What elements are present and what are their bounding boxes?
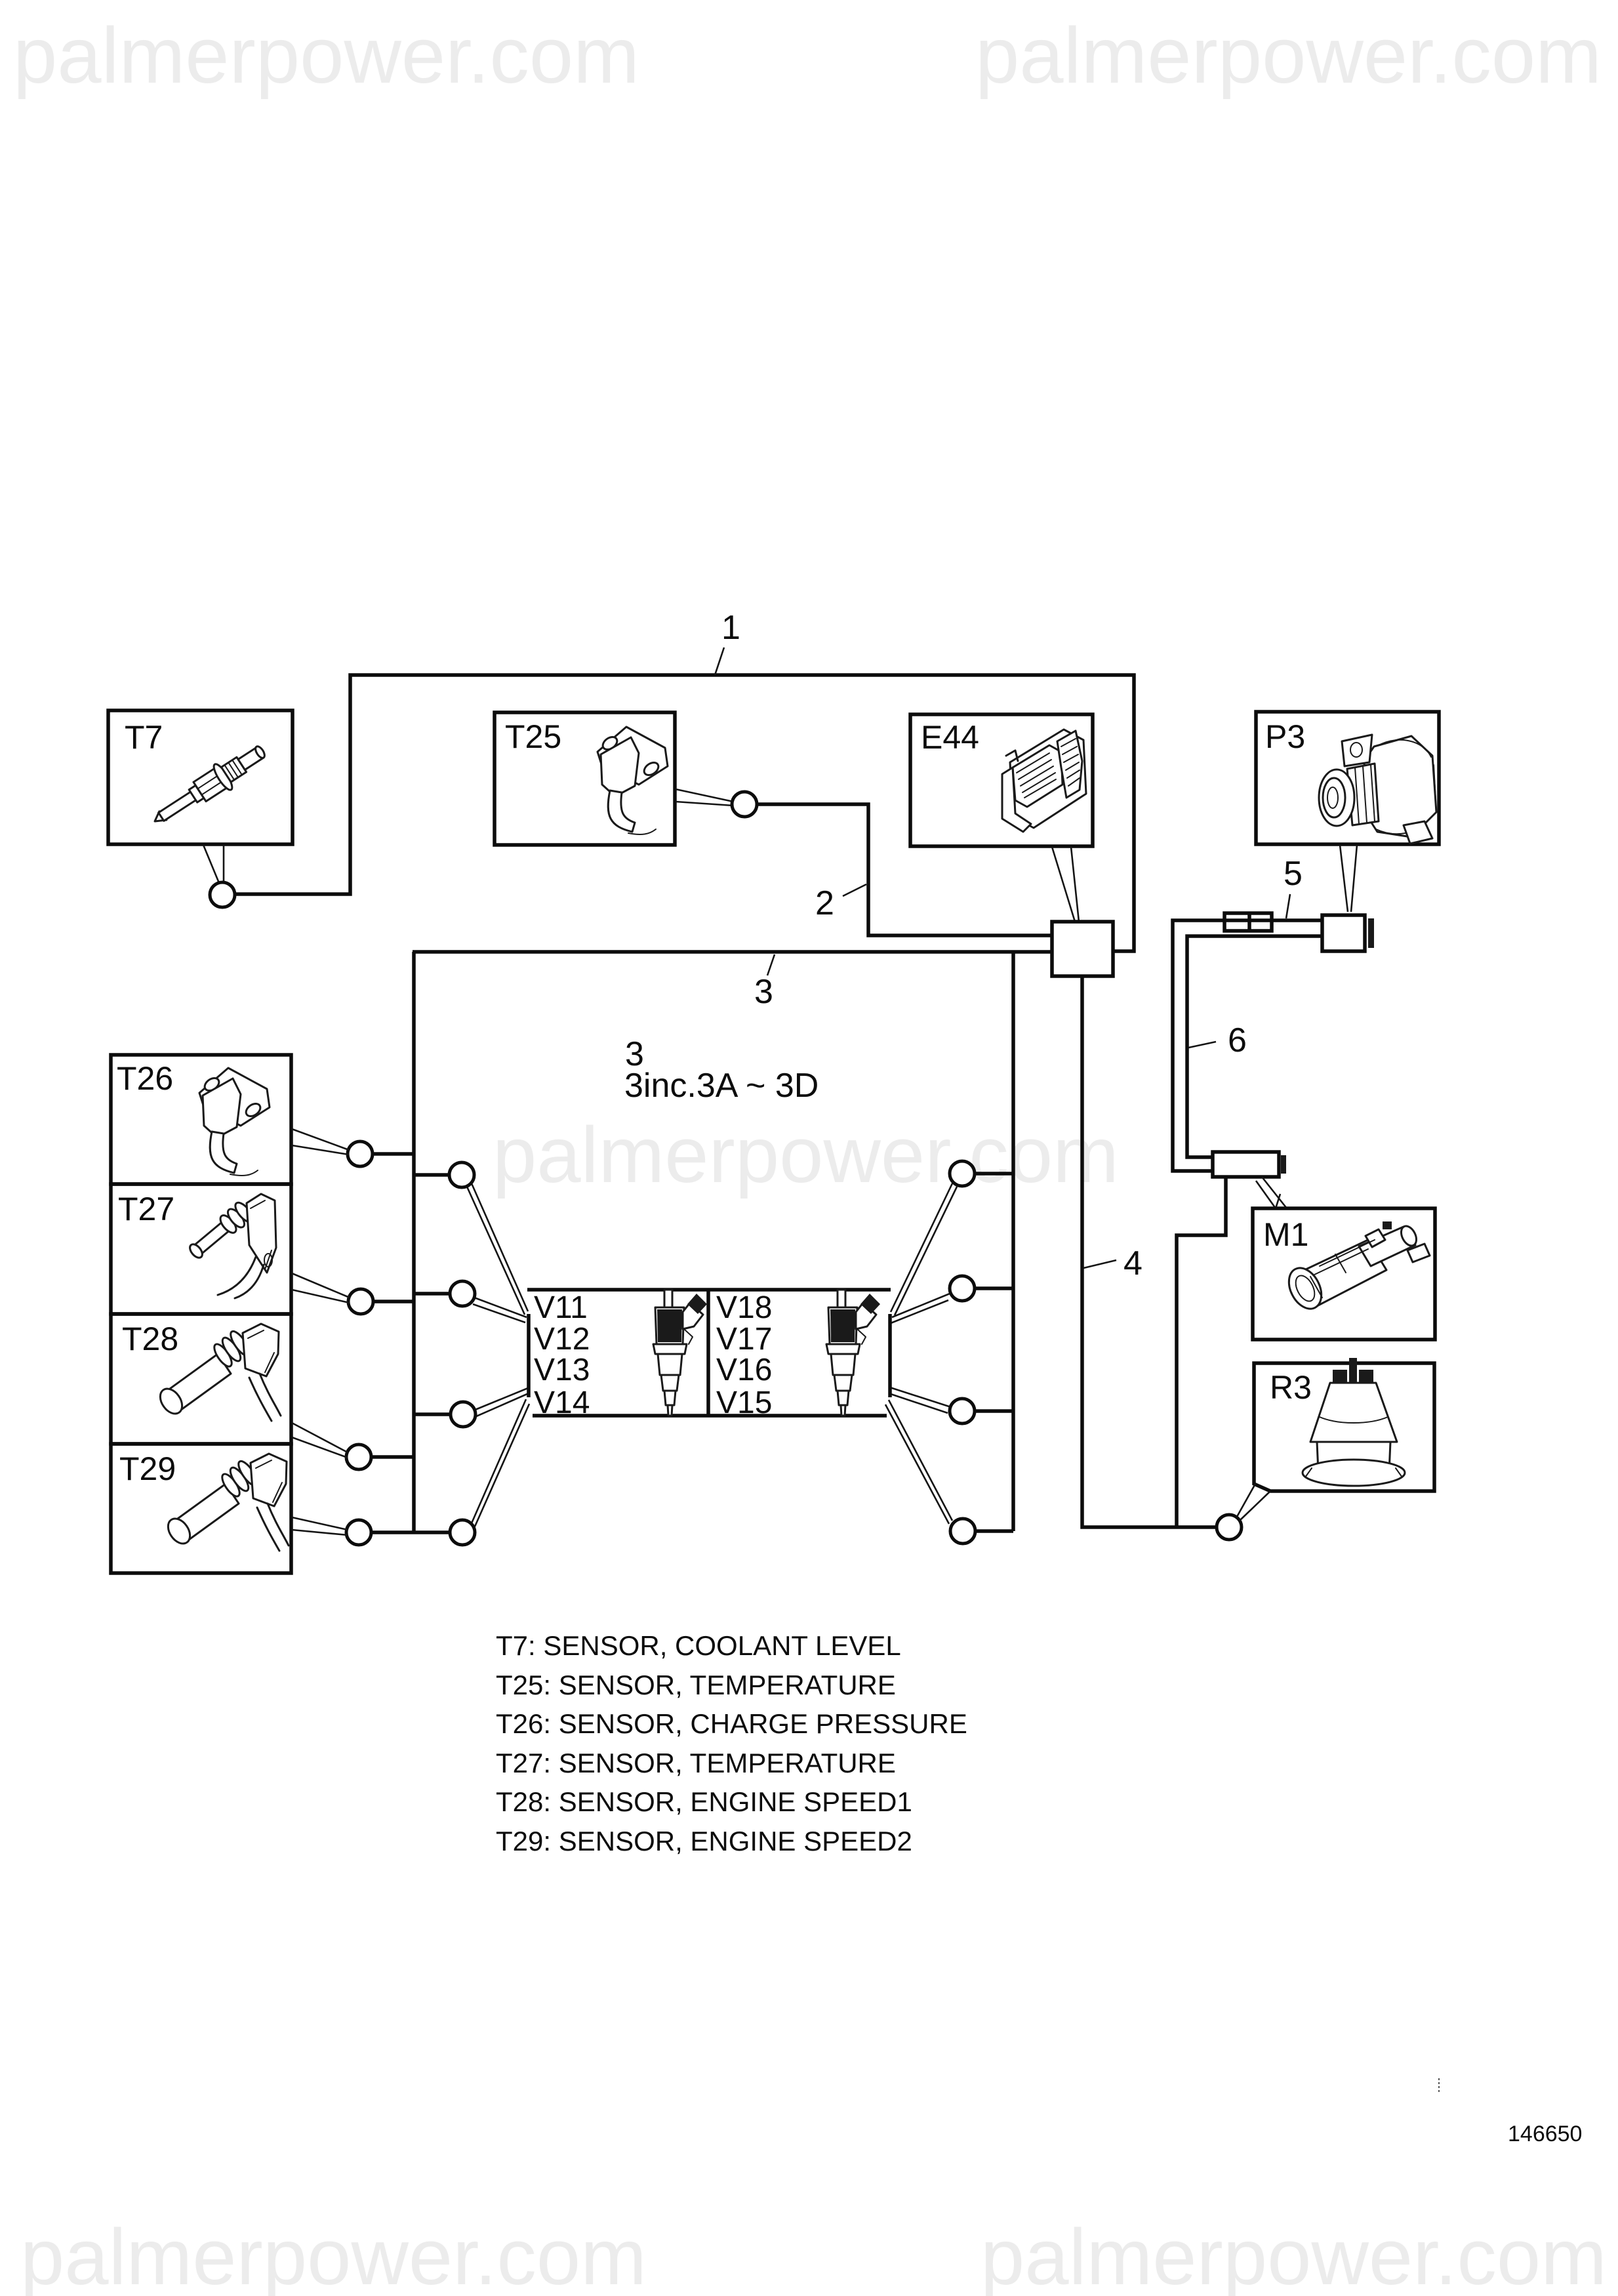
svg-text:P3: P3 (1265, 718, 1305, 755)
svg-text:5: 5 (1284, 855, 1303, 893)
svg-text:palmerpower.com: palmerpower.com (20, 2212, 647, 2296)
svg-text:T26: SENSOR, CHARGE PRESSURE: T26: SENSOR, CHARGE PRESSURE (496, 1708, 967, 1739)
svg-text:T29: T29 (119, 1450, 176, 1487)
svg-text:V17: V17 (716, 1322, 772, 1357)
svg-text:palmerpower.com: palmerpower.com (13, 10, 639, 100)
svg-text:palmerpower.com: palmerpower.com (975, 10, 1602, 100)
svg-text:V15: V15 (716, 1385, 772, 1420)
svg-text:E44: E44 (921, 719, 979, 756)
svg-text:2: 2 (815, 884, 834, 922)
svg-text:V13: V13 (534, 1353, 590, 1387)
svg-text:V14: V14 (534, 1385, 590, 1420)
svg-text:T29: SENSOR, ENGINE SPEED2: T29: SENSOR, ENGINE SPEED2 (496, 1826, 912, 1856)
svg-text:3inc.3A ~ 3D: 3inc.3A ~ 3D (624, 1067, 819, 1105)
svg-text:palmerpower.com: palmerpower.com (981, 2212, 1607, 2296)
svg-text:T27: SENSOR, TEMPERATURE: T27: SENSOR, TEMPERATURE (496, 1748, 896, 1778)
svg-text:T25: T25 (505, 718, 561, 755)
svg-text:T7: T7 (125, 719, 163, 756)
svg-text:3: 3 (754, 973, 773, 1011)
svg-text:T27: T27 (118, 1191, 174, 1227)
svg-text:6: 6 (1228, 1021, 1247, 1059)
svg-text:T26: T26 (117, 1060, 173, 1097)
svg-text:T25: SENSOR, TEMPERATURE: T25: SENSOR, TEMPERATURE (496, 1670, 896, 1700)
svg-text:T28: T28 (122, 1321, 178, 1357)
svg-text:1: 1 (721, 609, 740, 647)
svg-text:palmerpower.com: palmerpower.com (493, 1110, 1119, 1199)
svg-text:V18: V18 (716, 1290, 772, 1325)
svg-text:M1: M1 (1263, 1216, 1308, 1253)
svg-text:T7: SENSOR, COOLANT LEVEL: T7: SENSOR, COOLANT LEVEL (496, 1630, 901, 1661)
svg-text:V11: V11 (534, 1290, 588, 1325)
svg-text:4: 4 (1123, 1244, 1143, 1282)
svg-text:V16: V16 (716, 1353, 772, 1387)
svg-text:R3: R3 (1270, 1369, 1312, 1406)
svg-text:146650: 146650 (1508, 2122, 1582, 2146)
svg-text:T28: SENSOR, ENGINE SPEED1: T28: SENSOR, ENGINE SPEED1 (496, 1786, 912, 1817)
svg-text:V12: V12 (534, 1322, 590, 1357)
